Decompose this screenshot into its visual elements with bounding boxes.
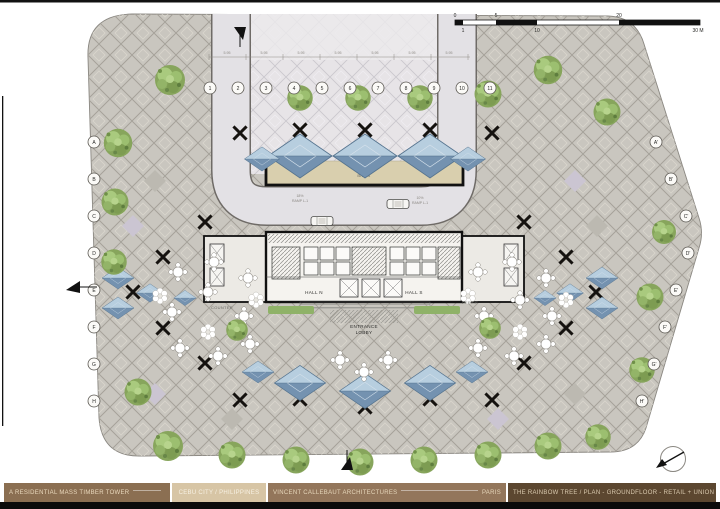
titlebar-project-segment: A RESIDENTIAL MASS TIMBER TOWER bbox=[4, 483, 170, 502]
svg-text:D': D' bbox=[686, 251, 691, 257]
grid-bubble: 10 bbox=[456, 82, 468, 94]
svg-text:5.95: 5.95 bbox=[261, 51, 268, 55]
tree-icon bbox=[475, 442, 502, 469]
svg-text:5.95: 5.95 bbox=[298, 51, 305, 55]
grid-bubble: 11 bbox=[484, 82, 496, 94]
svg-text:3: 3 bbox=[265, 86, 268, 92]
svg-text:11: 11 bbox=[487, 86, 492, 92]
svg-text:G': G' bbox=[652, 362, 657, 368]
counter-label: COUNTER bbox=[211, 305, 233, 310]
tree-icon bbox=[585, 424, 611, 450]
hall-s-label: HALL S bbox=[405, 290, 422, 295]
grid-bubble: C bbox=[88, 210, 100, 222]
grid-bubble: G' bbox=[648, 358, 660, 370]
entrance-crosswalk bbox=[330, 310, 398, 323]
tree-icon bbox=[534, 56, 563, 85]
svg-text:5.95: 5.95 bbox=[224, 51, 231, 55]
tree-icon bbox=[283, 447, 310, 474]
svg-text:5.95: 5.95 bbox=[372, 51, 379, 55]
tree-icon bbox=[125, 379, 152, 406]
grid-bubble: F' bbox=[659, 321, 671, 333]
scale-label: 1 bbox=[462, 28, 465, 34]
stair-east bbox=[438, 247, 460, 279]
grid-bubble: 9 bbox=[428, 82, 440, 94]
titlebar-sheet-segment: THE RAINBOW TREE / PLAN - GROUNDFLOOR - … bbox=[508, 483, 716, 502]
svg-text:E': E' bbox=[674, 288, 678, 294]
stair-west bbox=[272, 247, 300, 279]
left-property-line bbox=[2, 96, 3, 426]
tree-icon bbox=[535, 433, 562, 460]
grid-bubble: 6 bbox=[344, 82, 356, 94]
svg-text:D: D bbox=[92, 251, 96, 257]
grid-bubble: H bbox=[88, 395, 100, 407]
top-border-rule bbox=[0, 0, 720, 3]
scale-label: 20 bbox=[616, 13, 622, 19]
svg-text:4: 4 bbox=[293, 86, 296, 92]
ramp-east-label: RAMP L-1 bbox=[412, 201, 428, 205]
svg-text:7: 7 bbox=[377, 86, 380, 92]
grid-bubble: F bbox=[88, 321, 100, 333]
svg-text:H': H' bbox=[640, 399, 645, 405]
svg-text:B': B' bbox=[669, 177, 673, 183]
svg-text:G: G bbox=[92, 362, 96, 368]
hall-n-label: HALL N bbox=[305, 290, 323, 295]
tree-icon bbox=[219, 442, 246, 469]
scale-label: 0 bbox=[454, 13, 457, 19]
entrance-label-2: LOBBY bbox=[356, 330, 373, 335]
svg-text:A': A' bbox=[654, 140, 658, 146]
grid-bubble: G bbox=[88, 358, 100, 370]
svg-text:6: 6 bbox=[349, 86, 352, 92]
tree-icon bbox=[479, 317, 501, 339]
svg-text:C': C' bbox=[684, 214, 689, 220]
scale-label: 5 bbox=[495, 13, 498, 19]
north-arrow-icon bbox=[656, 447, 686, 472]
svg-text:8: 8 bbox=[405, 86, 408, 92]
scale-label: 30 M bbox=[692, 28, 703, 34]
project-title: A RESIDENTIAL MASS TIMBER TOWER bbox=[9, 490, 129, 496]
sheet-title: THE RAINBOW TREE / PLAN - GROUNDFLOOR - … bbox=[513, 490, 716, 496]
tree-icon bbox=[155, 65, 185, 95]
grid-bubble: A' bbox=[650, 136, 662, 148]
tree-icon bbox=[637, 284, 664, 311]
project-location: CEBU CITY / PHILIPPINES bbox=[179, 490, 260, 496]
grid-bubble: 3 bbox=[260, 82, 272, 94]
grid-bubble: B' bbox=[665, 173, 677, 185]
grid-bubble: 5 bbox=[316, 82, 328, 94]
firm-name: VINCENT CALLEBAUT ARCHITECTURES bbox=[273, 490, 397, 496]
tree-icon bbox=[411, 447, 438, 474]
scale-label: 10 bbox=[534, 28, 540, 34]
grid-bubble: 8 bbox=[400, 82, 412, 94]
title-bar: A RESIDENTIAL MASS TIMBER TOWER CEBU CIT… bbox=[0, 483, 720, 502]
svg-text:10: 10 bbox=[459, 86, 465, 92]
site-plan-drawing: BIKES bbox=[0, 0, 720, 483]
grid-bubble: E' bbox=[670, 284, 682, 296]
ramp-west-grade: 18% bbox=[296, 194, 303, 198]
grid-bubble: C' bbox=[680, 210, 692, 222]
bottom-border-rule bbox=[0, 502, 720, 509]
entrance-label-1: ENTRANCE bbox=[350, 324, 378, 329]
grid-bubble: 1 bbox=[204, 82, 216, 94]
grid-bubble: 4 bbox=[288, 82, 300, 94]
svg-text:H: H bbox=[92, 399, 96, 405]
tree-icon bbox=[153, 431, 183, 461]
titlebar-firm-segment: VINCENT CALLEBAUT ARCHITECTURES PARIS bbox=[268, 483, 506, 502]
tree-icon bbox=[652, 220, 676, 244]
stair-central bbox=[352, 247, 386, 275]
car-icon bbox=[387, 200, 409, 209]
core-corridor bbox=[268, 234, 460, 243]
titlebar-location-segment: CEBU CITY / PHILIPPINES bbox=[172, 483, 266, 502]
ramp-east-grade: 10% bbox=[416, 196, 423, 200]
grid-bubble: E bbox=[88, 284, 100, 296]
svg-text:5: 5 bbox=[321, 86, 324, 92]
grid-bubble: H' bbox=[636, 395, 648, 407]
building-core: HALL N HALL S bbox=[204, 232, 524, 302]
grid-bubble: B bbox=[88, 173, 100, 185]
car-icon bbox=[311, 217, 333, 226]
tree-icon bbox=[226, 319, 248, 341]
titlebar-rule bbox=[401, 490, 478, 491]
office-label: OFFICE bbox=[462, 300, 478, 305]
svg-text:9: 9 bbox=[433, 86, 436, 92]
tree-icon bbox=[594, 99, 621, 126]
grid-bubble: A bbox=[88, 136, 100, 148]
svg-text:5.95: 5.95 bbox=[409, 51, 416, 55]
tree-icon bbox=[104, 129, 133, 158]
grid-bubble: 2 bbox=[232, 82, 244, 94]
svg-text:5.95: 5.95 bbox=[335, 51, 342, 55]
ramp-west-label: RAMP L-1 bbox=[292, 199, 308, 203]
entrance-steps bbox=[300, 302, 430, 308]
svg-text:C: C bbox=[92, 214, 96, 220]
svg-text:F': F' bbox=[663, 325, 667, 331]
tree-icon bbox=[102, 189, 129, 216]
grid-bubble: 7 bbox=[372, 82, 384, 94]
hedge-east bbox=[414, 306, 460, 314]
tree-icon bbox=[101, 249, 127, 275]
svg-text:F: F bbox=[92, 325, 95, 331]
grid-bubble: D' bbox=[682, 247, 694, 259]
svg-text:1: 1 bbox=[209, 86, 212, 92]
firm-city: PARIS bbox=[482, 490, 501, 496]
grid-bubble: D bbox=[88, 247, 100, 259]
titlebar-rule bbox=[133, 490, 161, 491]
svg-text:2: 2 bbox=[237, 86, 240, 92]
svg-text:5.95: 5.95 bbox=[446, 51, 453, 55]
hedge-west bbox=[268, 306, 314, 314]
